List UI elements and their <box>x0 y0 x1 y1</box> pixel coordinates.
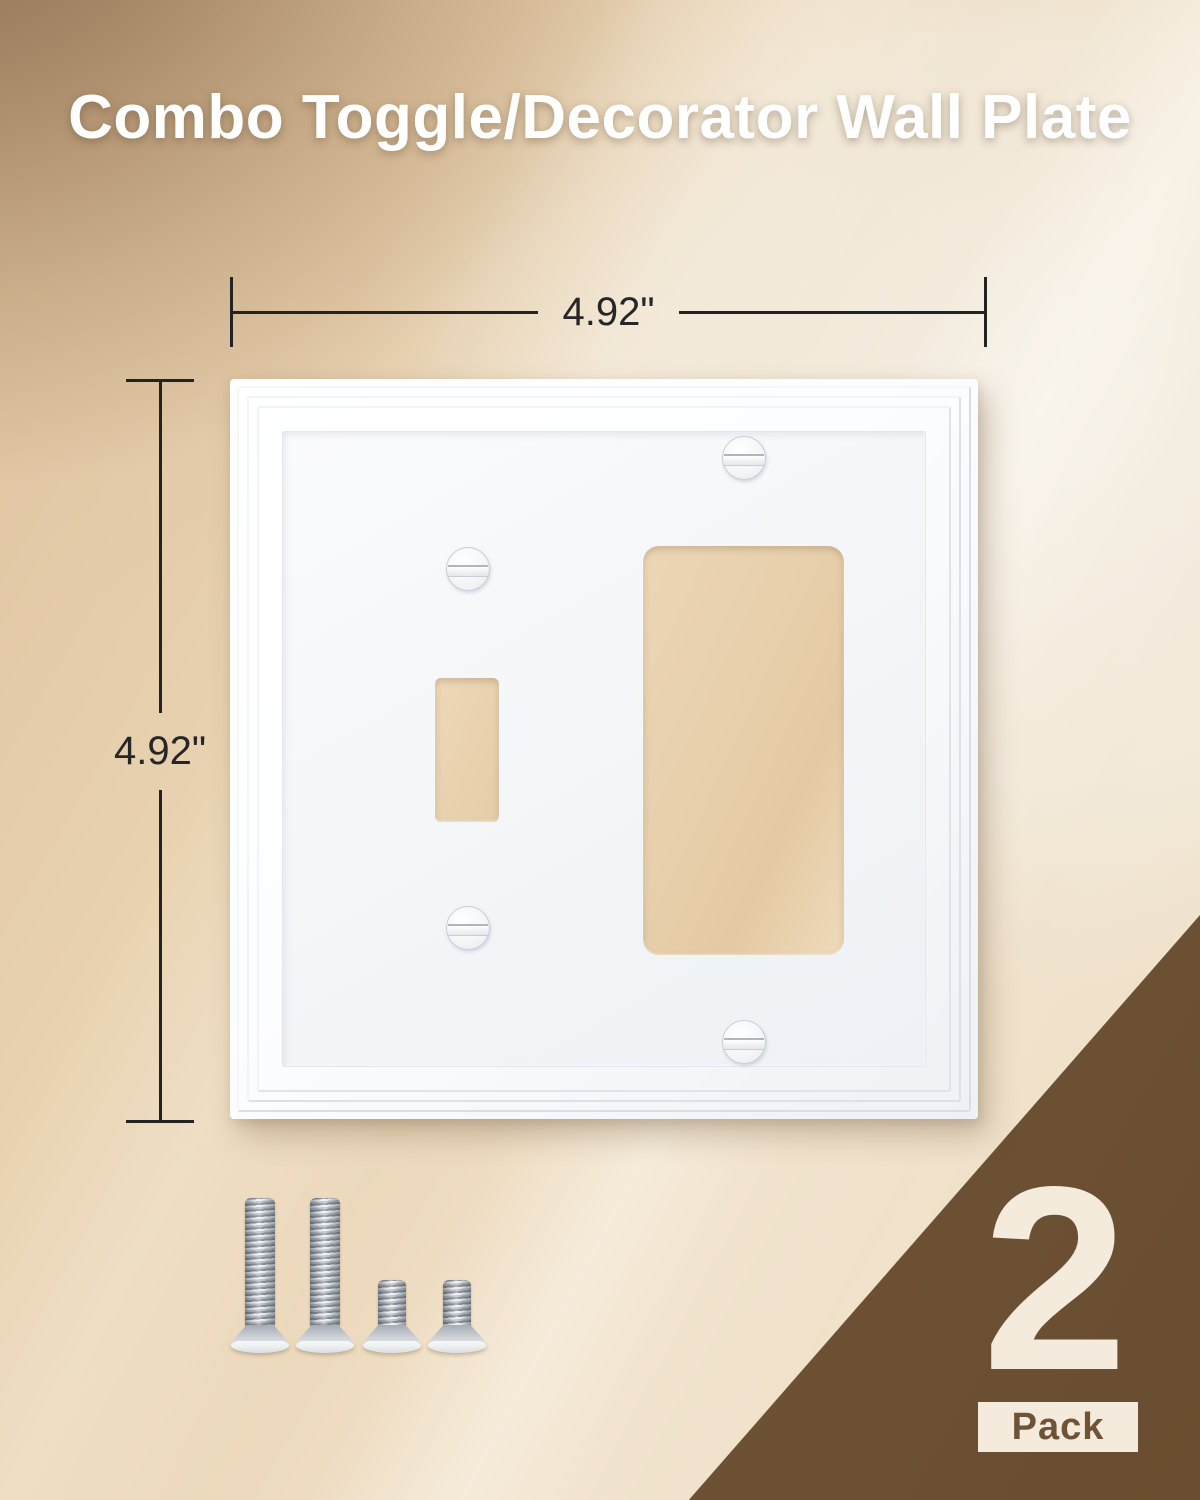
page-title: Combo Toggle/Decorator Wall Plate <box>0 82 1200 153</box>
mounting-screw-short <box>364 1280 420 1353</box>
plate-screw <box>722 436 766 480</box>
plate-screw <box>722 1020 766 1064</box>
screw-slot <box>448 565 488 577</box>
dimension-line <box>159 790 162 1121</box>
dimension-tick-bottom <box>126 1120 194 1123</box>
dimension-line <box>233 311 538 314</box>
height-dimension: 4.92" <box>126 379 194 1123</box>
toggle-cutout <box>435 678 499 822</box>
screw-thread <box>443 1280 471 1326</box>
plate-screw <box>446 547 490 591</box>
pack-count: 2 <box>967 1148 1143 1410</box>
decorator-cutout <box>643 546 844 955</box>
screw-thread <box>310 1198 340 1326</box>
width-dimension-label: 4.92" <box>538 290 678 335</box>
wall-plate <box>230 379 978 1119</box>
screw-thread <box>378 1280 406 1326</box>
product-image: Combo Toggle/Decorator Wall Plate 4.92" … <box>0 0 1200 1500</box>
screw-head-cone <box>232 1325 288 1341</box>
pack-unit-box: Pack <box>978 1402 1138 1452</box>
width-dimension: 4.92" <box>230 277 987 347</box>
screw-slot <box>448 924 488 936</box>
screw-head-cone <box>429 1325 485 1341</box>
screw-thread <box>245 1198 275 1326</box>
pack-unit-label: Pack <box>1012 1406 1105 1449</box>
plate-screw <box>446 906 490 950</box>
screw-head-cone <box>297 1325 353 1341</box>
screw-head-cone <box>364 1325 420 1341</box>
height-dimension-label: 4.92" <box>114 713 206 790</box>
screw-slot <box>724 1038 764 1050</box>
dimension-tick-right <box>984 277 987 347</box>
screw-slot <box>724 454 764 466</box>
dimension-line <box>159 382 162 713</box>
mounting-screw-long <box>297 1198 353 1353</box>
dimension-line <box>679 311 984 314</box>
mounting-screw-short <box>429 1280 485 1353</box>
mounting-screw-long <box>232 1198 288 1353</box>
